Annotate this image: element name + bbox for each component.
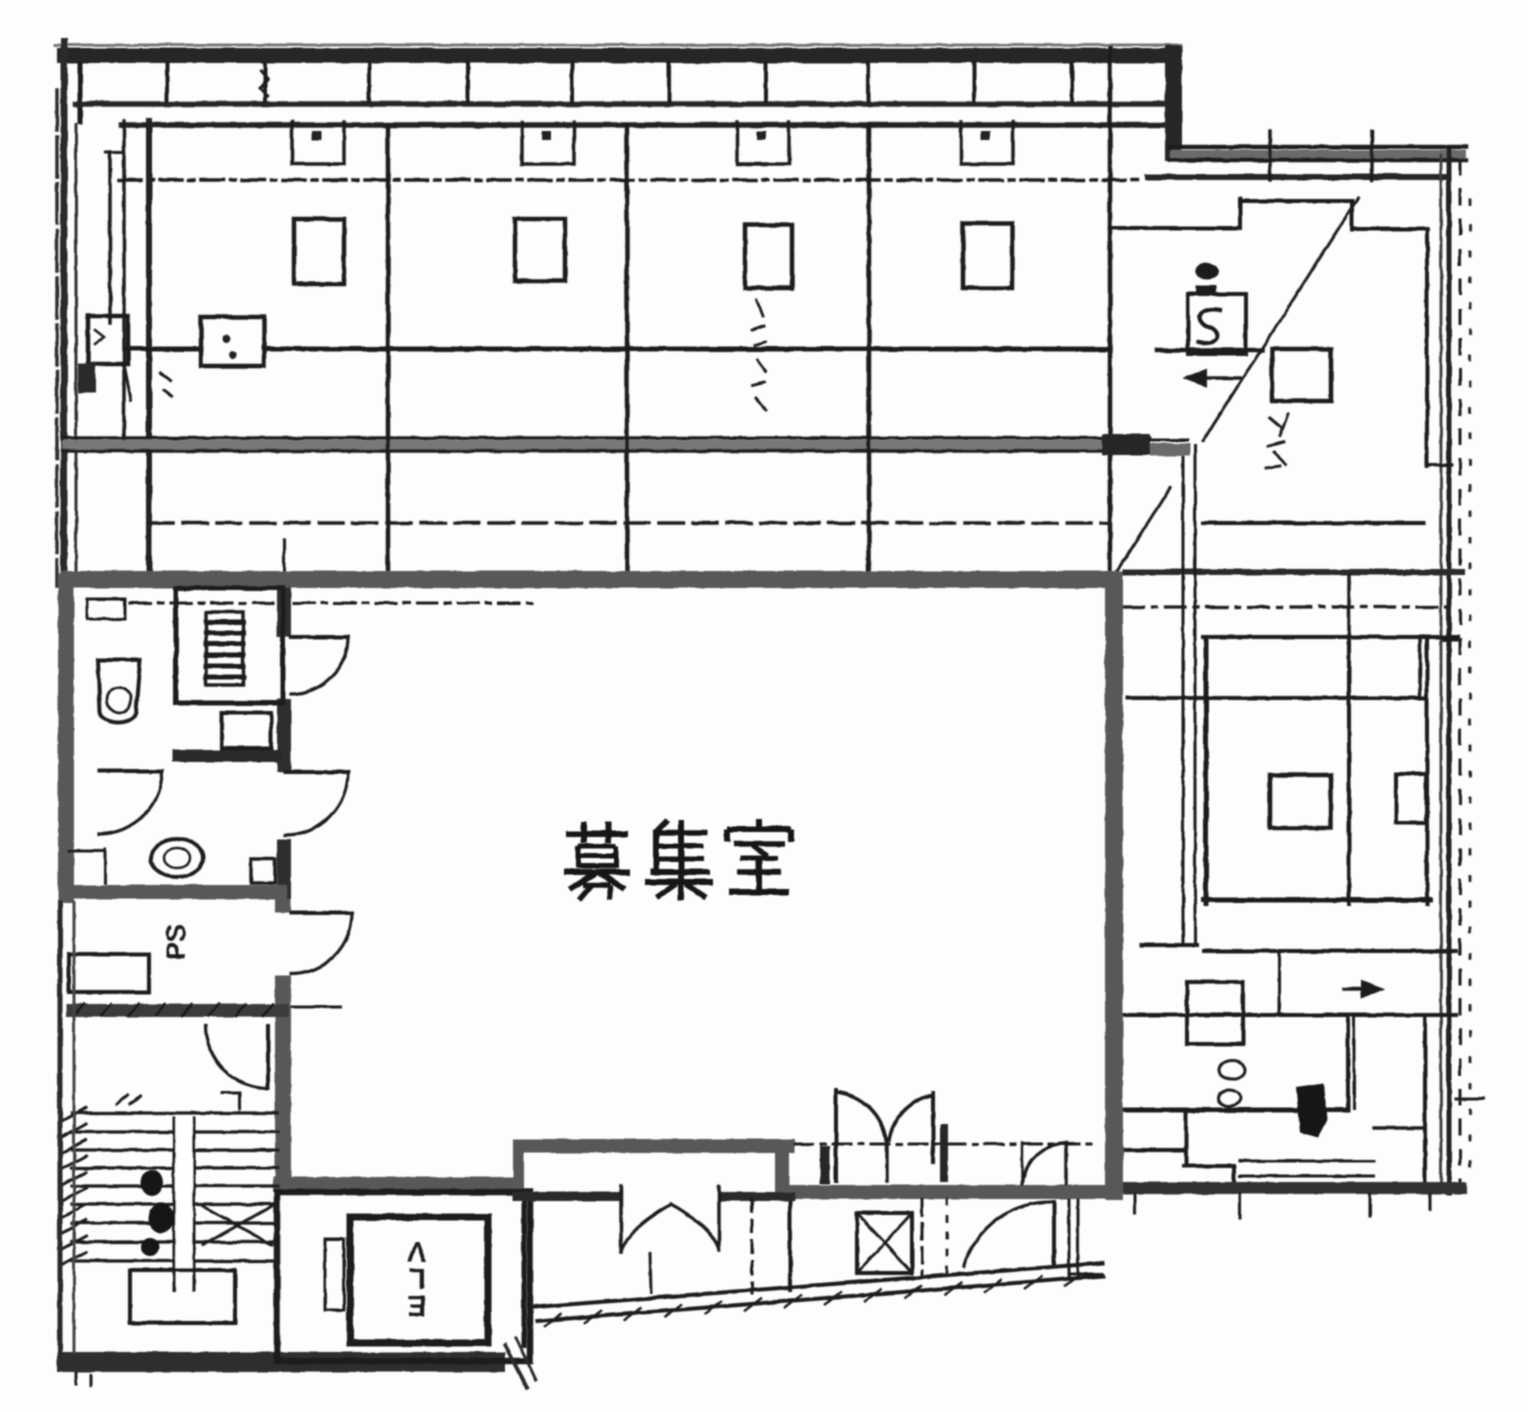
svg-text:PS: PS: [161, 924, 191, 960]
svg-text:E: E: [407, 1289, 426, 1321]
